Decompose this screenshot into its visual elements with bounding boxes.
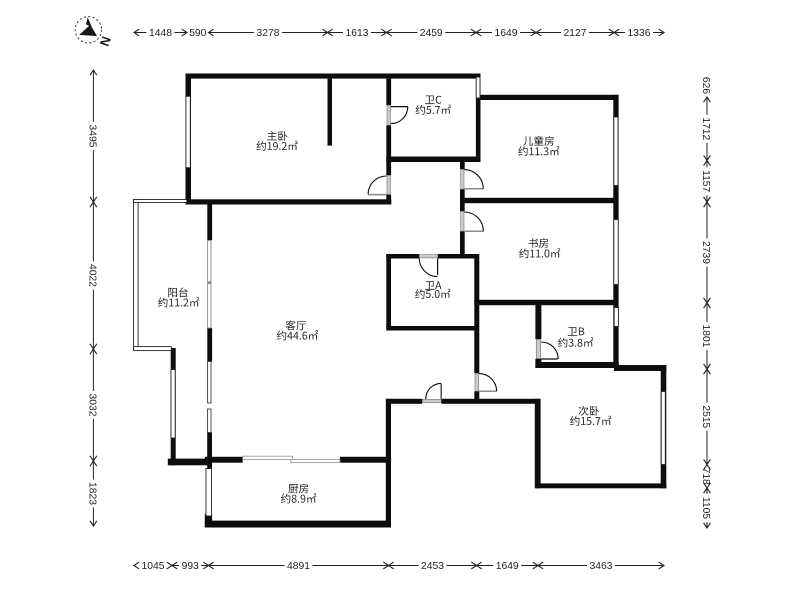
svg-text:993: 993 — [182, 561, 199, 572]
svg-text:2127: 2127 — [564, 28, 587, 39]
svg-text:2459: 2459 — [420, 28, 443, 39]
svg-text:1801: 1801 — [700, 325, 711, 348]
svg-text:4891: 4891 — [287, 561, 310, 572]
svg-text:1336: 1336 — [628, 28, 651, 39]
svg-text:1045: 1045 — [142, 561, 165, 572]
svg-text:2515: 2515 — [700, 405, 711, 428]
svg-text:590: 590 — [189, 28, 206, 39]
svg-text:718: 718 — [700, 468, 711, 485]
svg-text:1157: 1157 — [700, 170, 711, 192]
svg-text:1613: 1613 — [346, 28, 369, 39]
svg-text:2739: 2739 — [700, 241, 711, 264]
svg-text:1823: 1823 — [87, 482, 98, 505]
svg-text:3463: 3463 — [590, 561, 613, 572]
svg-text:1649: 1649 — [495, 28, 518, 39]
svg-text:3032: 3032 — [87, 394, 98, 417]
svg-text:1649: 1649 — [496, 561, 519, 572]
svg-text:3495: 3495 — [87, 125, 98, 148]
svg-text:2453: 2453 — [421, 561, 444, 572]
svg-text:626: 626 — [700, 77, 711, 94]
svg-text:1712: 1712 — [700, 117, 711, 140]
svg-text:1105: 1105 — [700, 497, 711, 519]
svg-text:4022: 4022 — [87, 264, 98, 287]
svg-text:3278: 3278 — [257, 28, 280, 39]
svg-text:1448: 1448 — [149, 28, 172, 39]
